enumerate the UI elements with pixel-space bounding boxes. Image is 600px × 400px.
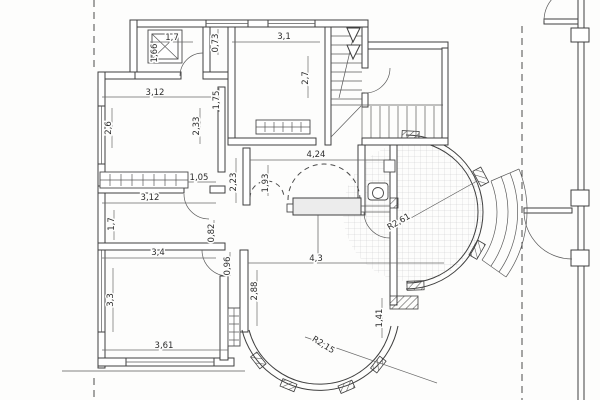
dimension-label: 2,88 [250, 282, 260, 301]
dimension-label: 3,1 [277, 32, 291, 42]
living-left-wall [240, 250, 248, 332]
dimension-label: 1,05 [190, 173, 209, 183]
dimension-label: 1,7 [107, 217, 117, 231]
dimension-label: 1,41 [375, 309, 385, 328]
bathroom-door-arc [180, 53, 203, 76]
dimension-label: 2,6 [104, 121, 114, 135]
window [126, 358, 214, 366]
top-wall [130, 20, 368, 27]
floor-plan-sheet: 1,71,660,733,12,73,121,752,62,331,053,12… [0, 0, 600, 400]
neighbor-pier [571, 28, 589, 42]
bathroom-right-wall [203, 27, 210, 72]
bay-pier [338, 380, 355, 393]
dimension-label: R2,15 [310, 334, 336, 356]
neighbor-building [524, 0, 589, 400]
stair-winder-line [331, 106, 361, 137]
dimension-label: 1,66 [150, 44, 160, 63]
dimension-label: 0,96 [223, 257, 233, 276]
dimension-label: 4,3 [309, 254, 323, 264]
right-outer-wall [442, 48, 448, 145]
dimension-label: 0,73 [211, 34, 221, 53]
bay-window [242, 326, 398, 393]
dimension-label: 3,61 [155, 341, 174, 351]
window [98, 250, 105, 332]
neighbor-door-top [544, 0, 578, 24]
neighbor-pier [571, 250, 589, 266]
wc-toilet [368, 183, 388, 200]
dimension-label: 1,75 [212, 91, 222, 110]
radiator-under-window [256, 120, 310, 134]
radiator-vertical [228, 308, 240, 346]
dimension-label: 1,93 [261, 174, 271, 193]
dimension-label: 2,23 [229, 173, 239, 192]
bay-terrace-junction [390, 296, 418, 309]
terrace-pier [407, 281, 424, 291]
dimension-label: 3,12 [146, 88, 165, 98]
wc-sink [384, 160, 395, 172]
window [268, 20, 315, 27]
radiator-horizontal [100, 172, 188, 188]
entry-door-arc [365, 68, 390, 93]
window [206, 20, 248, 27]
porch-top-wall [368, 42, 448, 49]
neighbor-pier [571, 190, 589, 206]
dimension-label: 2,33 [192, 117, 202, 136]
dimension-label: 4,24 [307, 150, 326, 160]
floor-plan-canvas: 1,71,660,733,12,73,121,752,62,331,053,12… [0, 0, 600, 400]
room-door-arc [184, 194, 209, 219]
dimension-label: 0,82 [207, 224, 217, 243]
dimension-label: 2,7 [301, 71, 311, 85]
dimension-label: 3,3 [106, 293, 116, 307]
dimension-label: 3,4 [151, 248, 165, 258]
dimension-label: 1,7 [165, 33, 179, 43]
exterior-curved-steps [482, 169, 527, 277]
dimension-label: 3,12 [141, 193, 160, 203]
neighbor-door-middle [524, 208, 572, 259]
bay-pier [280, 379, 297, 392]
